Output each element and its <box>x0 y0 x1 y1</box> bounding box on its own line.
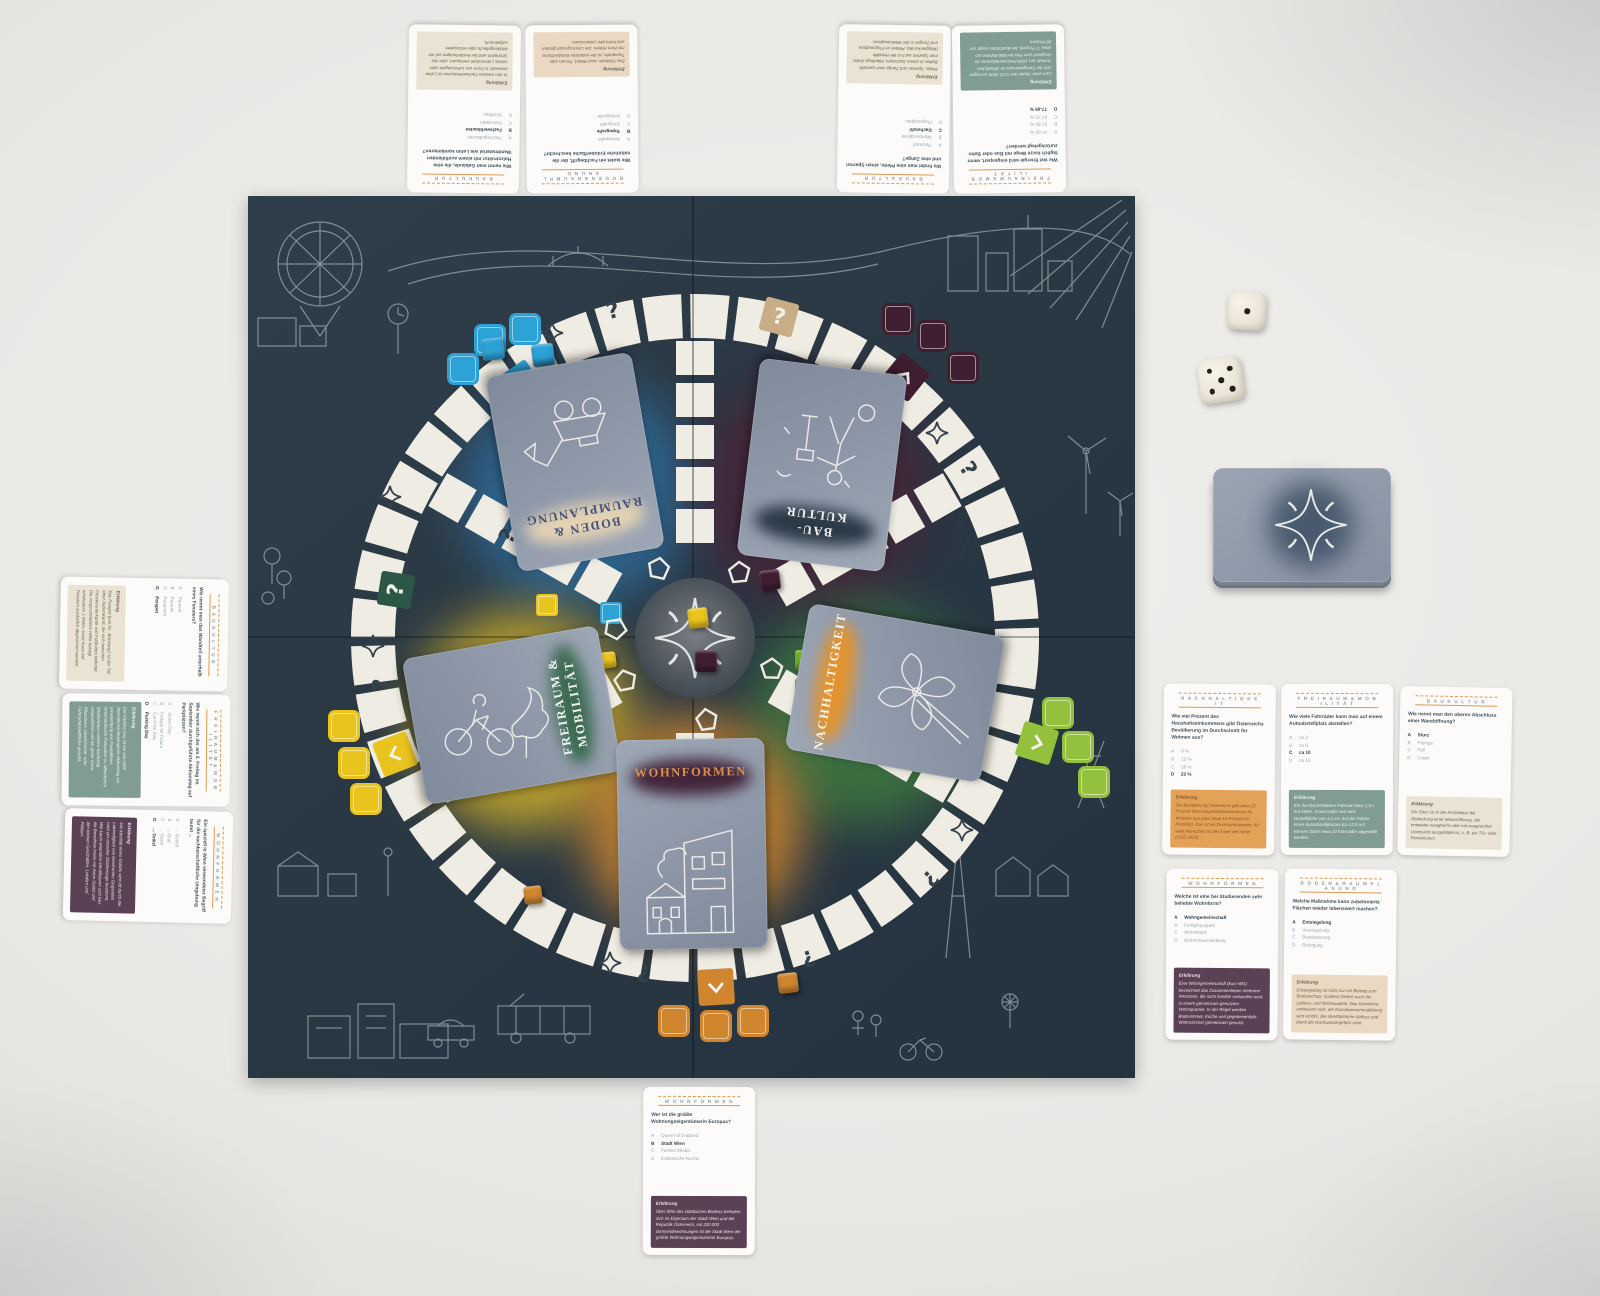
die-two[interactable] <box>1196 355 1246 405</box>
card-explanation-text: Der Parking Day ist ein seit 2005 intern… <box>76 706 127 787</box>
card-options: AWohngemeinschaftBFertighausparkCWohnblo… <box>1174 912 1270 946</box>
deck-label: WOHNFORMEN <box>621 764 761 782</box>
answer-option-C[interactable]: CWohnblock <box>1174 930 1270 936</box>
deck-baukultur[interactable]: BAU-KULTUR <box>736 358 907 573</box>
answer-option-D[interactable]: Dca 15 <box>1289 758 1385 763</box>
answer-option-D[interactable]: D... Grätzl <box>150 818 157 914</box>
card-explanation-title: Erklärung <box>656 1201 742 1208</box>
card-question: Wie viele Fahrräder kann man auf einem A… <box>1289 714 1385 729</box>
category-home-square <box>1042 697 1074 729</box>
card-question: Wie nennt man den oberen Abschluss einer… <box>1408 711 1504 727</box>
card-category-label: B A U K U L T U R <box>852 173 935 184</box>
answer-option-B[interactable]: B... Graf <box>165 818 172 914</box>
answer-option-B[interactable]: BFertighauspark <box>1174 922 1270 928</box>
card-explanation-box: ErklärungÜber 50% des städtischen Bodens… <box>651 1196 747 1248</box>
track-star-icon <box>597 950 623 976</box>
question-card[interactable]: F R E I R A U M & M O B I L I T Ä T Wie … <box>62 693 231 806</box>
answer-option-B[interactable]: Bca 6 <box>1289 742 1385 747</box>
track-question-icon: ? <box>625 954 664 993</box>
answer-option-B[interactable]: BWerkzeugkiste <box>846 134 942 141</box>
answer-option-C[interactable]: CGeografie <box>534 121 630 127</box>
question-card[interactable]: W O H N F O R M E N Ein speziell in Wien… <box>63 808 233 924</box>
card-explanation-box: ErklärungEin durchschnittliches Fahrrad … <box>1289 789 1385 848</box>
card-explanation-title: Erklärung <box>1179 973 1265 980</box>
answer-option-A[interactable]: A... Gstettl <box>173 819 180 915</box>
card-explanation-title: Erklärung <box>1294 794 1380 801</box>
painted-track-square <box>536 594 558 616</box>
track-star-icon <box>360 633 386 659</box>
answer-option-B[interactable]: B13 % <box>1171 756 1267 762</box>
card-options: A47-55 %B57-65 %C67-75 %D77-85 % <box>961 104 1057 139</box>
card-category-label: W O H N F O R M E N <box>1181 878 1264 889</box>
four-point-star-icon <box>1266 480 1356 570</box>
category-home-square <box>658 1005 690 1037</box>
game-cube-token[interactable] <box>523 885 543 905</box>
category-home-square <box>737 1005 769 1037</box>
answer-option-D[interactable]: DCrash <box>1407 755 1503 762</box>
card-category-label: B A U K U L T U R <box>208 594 219 677</box>
card-question: Wie nennt man Gebäude, die eine Holzstru… <box>415 146 511 168</box>
answer-option-D[interactable]: DKatholische Kirche <box>651 1156 747 1161</box>
card-question: Wie lautet ein Fachbegriff, der die natü… <box>534 148 630 163</box>
die-pip <box>1209 388 1215 394</box>
card-explanation-box: ErklärungEntsiegelung ist nicht nur ein … <box>1291 974 1388 1034</box>
card-question: Wie nennt sich der am 3. Freitag im Sept… <box>178 702 200 798</box>
answer-option-A[interactable]: AEntsiegelung <box>1292 919 1388 925</box>
question-card[interactable]: B A U K U L T U R Wo findet man eine Pfe… <box>837 24 952 194</box>
house-pentagon-icon <box>597 613 632 643</box>
category-home-square <box>917 320 949 352</box>
category-home-square <box>447 353 479 385</box>
hub-star-icon <box>647 590 743 686</box>
answer-option-C[interactable]: CParament <box>161 586 168 682</box>
card-explanation-title: Erklärung <box>966 78 1052 86</box>
card-explanation-title: Erklärung <box>539 65 625 73</box>
houses-illustration <box>631 812 753 940</box>
answer-option-C[interactable]: Cca 10 <box>1289 750 1385 755</box>
card-options: ASturzBPlumpsCFallDCrash <box>1407 729 1504 764</box>
question-card[interactable]: B A U K U L T U R Wie nennt man den ober… <box>1397 686 1512 857</box>
card-question: Welche ist eine bei Studierenden sehr be… <box>1174 894 1270 909</box>
card-category-label: B A U K U L T U R <box>1415 695 1498 707</box>
answer-option-C[interactable]: C... Gassl <box>158 818 165 914</box>
card-options: AHeustadlBWerkzeugkisteCDachstuhlDFlugze… <box>845 116 942 151</box>
question-card[interactable]: B A U K U L T U R Wie nennt man das Wand… <box>59 577 229 692</box>
card-explanation-text: Eine Wohngemeinschaft (kurz WG) bezeichn… <box>1179 981 1264 1026</box>
answer-option-C[interactable]: CFamilie Medici <box>651 1148 747 1153</box>
card-explanation-text: Über 50% des städtischen Bodens befinden… <box>656 1209 741 1240</box>
answer-option-B[interactable]: BTopografie <box>534 129 630 135</box>
track-star-icon <box>377 484 403 510</box>
card-explanation-box: ErklärungDas Gelände, auch Relief, Terra… <box>533 32 629 78</box>
card-options: ASonografieBTopografieCGeografieDKartogr… <box>534 111 630 145</box>
answer-option-B[interactable]: BParodie <box>169 586 176 682</box>
card-category-label: F R E I R A U M & M O B I L I T Ä T <box>969 168 1052 184</box>
category-home-square <box>350 783 382 815</box>
category-home-square <box>338 747 370 779</box>
track-question-icon: ? <box>362 665 401 704</box>
card-category-label: W O H N F O R M E N <box>212 826 224 909</box>
answer-option-B[interactable]: BFachwerkbauten <box>416 127 512 133</box>
question-card[interactable]: B A U K U L T U R Wie nennt man Gebäude,… <box>407 24 521 193</box>
draw-pile[interactable] <box>1213 468 1391 582</box>
card-explanation-title: Erklärung <box>128 707 136 793</box>
category-home-square <box>1062 731 1094 763</box>
track-star-icon <box>924 420 950 446</box>
question-card[interactable]: F R E I R A U M & M O B I L I T Ä T Wie … <box>1281 684 1394 855</box>
answer-option-D[interactable]: DParapet <box>153 586 160 682</box>
question-card[interactable]: N A C H H A L T I G K E I T Wie viel Pro… <box>1162 683 1276 855</box>
excavator-illustration <box>503 376 640 505</box>
game-cube-token[interactable] <box>759 569 781 591</box>
card-options: Aca 3Bca 6Cca 10Dca 15 <box>1289 732 1385 766</box>
card-options: AParasolBParodieCParamentDParapet <box>151 586 186 683</box>
house-pentagon-icon <box>692 704 722 739</box>
card-explanation-title: Erklärung <box>113 590 121 676</box>
card-category-label: B O D E N & R A U M P L A N U N G <box>541 169 624 185</box>
answer-option-C[interactable]: C67-75 % <box>961 114 1057 120</box>
die-one[interactable] <box>1227 291 1267 331</box>
answer-option-D[interactable]: DReihenhaussiedlung <box>1174 938 1270 944</box>
card-explanation-box: ErklärungDie Identität eines Grätzls wir… <box>70 816 137 913</box>
answer-option-A[interactable]: A8 % <box>1171 749 1267 755</box>
answer-option-A[interactable]: ASturz <box>1408 732 1504 739</box>
card-explanation-text: Das Parapet (von frz. ‚Brüstung') ist de… <box>74 590 113 674</box>
card-explanation-title: Erklärung <box>421 78 507 86</box>
die-pip <box>1218 377 1224 383</box>
card-category-label: B O D E N & R A U M P L A N U N G <box>1299 878 1382 894</box>
card-explanation-text: Ein durchschnittliches Fahrrad misst 1,8… <box>1294 803 1377 841</box>
card-explanation-text: Die Identität eines Grätzls wird oft dur… <box>79 821 123 906</box>
answer-option-A[interactable]: Aca 3 <box>1289 735 1385 740</box>
answer-option-B[interactable]: BVersiegelung <box>1292 927 1388 933</box>
game-board: ?????????? BODEN & RAUMPLANUNG BAU-KULTU… <box>248 196 1135 1078</box>
category-home-square <box>947 352 979 384</box>
answer-option-D[interactable]: D77-85 % <box>961 106 1057 112</box>
card-explanation-text: Pfette, Sparren und Zange sind spezielle… <box>853 39 938 71</box>
question-card[interactable]: F R E I R A U M & M O B I L I T Ä T Wie … <box>952 24 1066 194</box>
answer-option-B[interactable]: BPlumps <box>1408 740 1504 747</box>
answer-option-A[interactable]: AWohngemeinschaft <box>1174 915 1270 921</box>
cyclist-illustration <box>430 664 550 774</box>
question-card[interactable]: W O H N F O R M E N Wer ist die größte W… <box>643 1087 756 1255</box>
game-cube-token[interactable] <box>687 607 709 629</box>
card-explanation-box: ErklärungLaut einer Studie des VCÖ 2009 … <box>960 31 1057 91</box>
card-options: AEntsiegelungBVersiegelungCBewässerungDR… <box>1292 917 1388 952</box>
game-cube-token[interactable] <box>695 650 717 672</box>
card-category-label: N A C H H A L T I G K E I T <box>1178 693 1261 709</box>
card-question: Wer ist die größte Wohnungseigentümerin … <box>651 1112 747 1127</box>
category-home-square <box>509 313 541 345</box>
die-pip <box>1206 368 1212 374</box>
track-star-icon <box>539 320 565 346</box>
category-home-square <box>882 303 914 335</box>
answer-option-B[interactable]: B57-65 % <box>961 122 1057 128</box>
answer-option-A[interactable]: AHeustadl <box>845 141 941 148</box>
answer-option-C[interactable]: CFall <box>1407 747 1503 754</box>
die-pip <box>1244 308 1250 314</box>
answer-option-C[interactable]: C18 % <box>1171 764 1267 770</box>
card-explanation-title: Erklärung <box>1411 801 1497 810</box>
card-explanation-text: Das Gelände, auch Relief, Terrain oder T… <box>542 39 625 64</box>
die-pip <box>1229 385 1235 391</box>
category-home-square <box>700 1010 732 1042</box>
track-star-icon <box>949 817 975 843</box>
die-pip <box>1226 365 1232 371</box>
card-explanation-text: In den meisten Fachwerkhäusern ist Lehm … <box>426 40 508 78</box>
card-explanation-text: Entsiegelung ist nicht nur ein Beitrag z… <box>1296 987 1382 1025</box>
card-question: Welche Maßnahme kann zubetonierte Fläche… <box>1293 898 1389 913</box>
answer-option-A[interactable]: AHolzriegelbauten <box>416 134 512 140</box>
answer-option-A[interactable]: AParasol <box>176 587 183 683</box>
card-options: AHolzriegelbautenBFachwerkbautenCHolzsta… <box>416 109 512 144</box>
answer-option-D[interactable]: D23 % <box>1171 772 1267 778</box>
card-explanation-title: Erklärung <box>1176 794 1262 802</box>
answer-option-D[interactable]: DStrohbau <box>416 111 512 117</box>
card-question: Wo findet man eine Pfette, einen Sparren… <box>845 153 941 169</box>
answer-option-B[interactable]: BStadt Wien <box>651 1140 747 1145</box>
card-question: Wie viel Prozent des Haushaltseinkommens… <box>1171 714 1267 743</box>
answer-option-C[interactable]: CDachstuhl <box>846 126 942 133</box>
card-explanation-box: ErklärungDer Parking Day ist ein seit 20… <box>69 701 141 798</box>
category-home-square <box>1078 766 1110 798</box>
answer-option-A[interactable]: AQueen of England <box>651 1133 747 1138</box>
card-explanation-box: ErklärungDas Parapet (von frz. ‚Brüstung… <box>66 585 126 682</box>
card-explanation-box: ErklärungDie Bevölkerung Österreichs gib… <box>1170 789 1267 848</box>
card-explanation-title: Erklärung <box>123 822 132 908</box>
answer-option-D[interactable]: DParking Day <box>144 702 150 798</box>
card-options: AAction DayBFridays for FutureCCar-Free … <box>141 702 175 798</box>
card-category-label: W O H N F O R M E N <box>658 1096 741 1106</box>
card-category-label: F R E I R A U M & M O B I L I T Ä T <box>1296 693 1379 708</box>
builder-illustration <box>758 381 891 505</box>
card-options: A8 %B13 %C18 %D23 % <box>1171 746 1267 780</box>
question-card[interactable]: B O D E N & R A U M P L A N U N G Wie la… <box>525 25 638 194</box>
card-explanation-text: Laut einer Studie des VCÖ 2009 verringer… <box>969 39 1051 78</box>
question-card[interactable]: B O D E N & R A U M P L A N U N G Welche… <box>1283 868 1397 1040</box>
answer-option-C[interactable]: CBewässerung <box>1292 935 1388 941</box>
track-question-icon: ? <box>377 571 416 610</box>
answer-option-A[interactable]: ASonografie <box>534 137 630 143</box>
game-cube-token[interactable] <box>481 337 506 362</box>
category-chevron-square <box>697 968 735 1006</box>
card-options: AQueen of EnglandBStadt WienCFamilie Med… <box>651 1130 747 1164</box>
card-explanation-box: ErklärungIn den meisten Fachwerkhäusern … <box>416 31 513 91</box>
game-cube-token[interactable] <box>777 972 799 994</box>
answer-option-C[interactable]: CCar-Free Day <box>151 702 157 798</box>
card-explanation-box: ErklärungPfette, Sparren und Zange sind … <box>846 31 943 84</box>
game-cube-token[interactable] <box>531 343 556 368</box>
answer-option-C[interactable]: CHolzstadel <box>416 119 512 125</box>
question-card[interactable]: W O H N F O R M E N Welche ist eine bei … <box>1165 869 1278 1041</box>
card-question: Wie nennt man das Wandteil unterhalb ein… <box>188 587 204 683</box>
answer-option-B[interactable]: BFridays for Future <box>159 702 165 798</box>
card-explanation-text: Die Bevölkerung Österreichs gibt etwa 23… <box>1175 802 1259 840</box>
answer-option-D[interactable]: DFlugzeugbau <box>846 118 942 125</box>
pinwheel-illustration <box>857 642 977 752</box>
card-category-label: B A U K U L T U R <box>422 173 505 184</box>
card-explanation-box: ErklärungEin Sturz ist in der Architektu… <box>1406 796 1503 850</box>
card-question: Wie viel Energie wird eingespart, wenn t… <box>961 141 1057 164</box>
answer-option-A[interactable]: AAction Day <box>167 702 173 798</box>
category-home-square <box>328 710 360 742</box>
deck-wohnformen[interactable]: WOHNFORMEN <box>616 738 768 951</box>
answer-option-A[interactable]: A47-55 % <box>961 129 1057 135</box>
card-question: Ein speziell in Wien verwendeter Begriff… <box>185 819 209 915</box>
card-explanation-title: Erklärung <box>1297 979 1383 987</box>
card-explanation-box: ErklärungEine Wohngemeinschaft (kurz WG)… <box>1173 968 1269 1034</box>
board-hub <box>635 578 755 698</box>
answer-option-D[interactable]: DReinigung <box>1292 942 1388 948</box>
card-options: A... GstettlB... GrafC... GasslD... Grät… <box>147 818 183 915</box>
card-explanation-title: Erklärung <box>851 71 937 79</box>
answer-option-D[interactable]: DKartografie <box>534 114 630 120</box>
card-explanation-text: Ein Sturz ist in der Architektur die Abd… <box>1411 810 1497 842</box>
card-category-label: F R E I R A U M & M O B I L I T Ä T <box>206 709 222 792</box>
